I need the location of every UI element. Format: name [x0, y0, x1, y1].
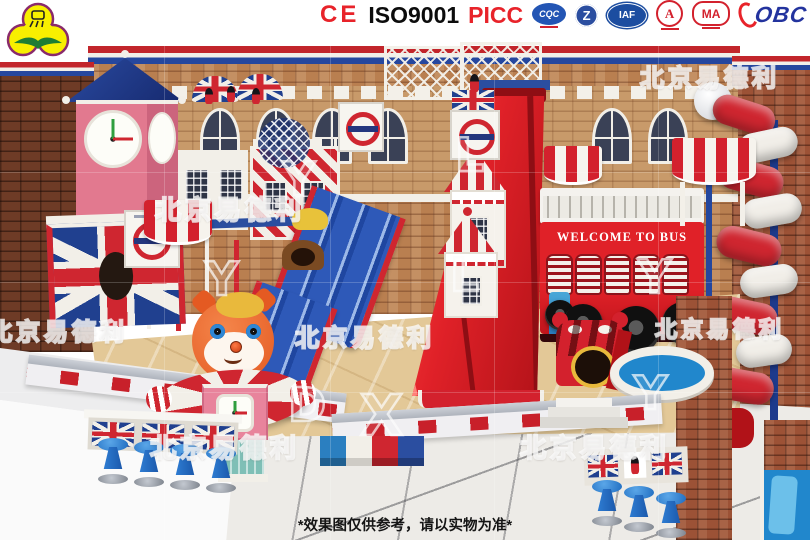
watermark-letter: Y	[282, 152, 315, 206]
grid-line	[0, 172, 810, 173]
barrel-arch	[282, 240, 324, 270]
cert-iso9001: ISO9001	[368, 2, 459, 29]
watermark-letter: X	[360, 384, 403, 449]
barrel-hole	[291, 248, 315, 266]
bus-shutter-window	[577, 256, 600, 293]
watermark-text: 北京易德利	[640, 58, 780, 93]
watermark-text: 北京易德利	[295, 318, 435, 353]
cert-badge-z: Z	[575, 4, 598, 27]
cert-badge-a: A	[656, 0, 683, 30]
cone-finial	[463, 207, 472, 216]
cert-badge-obc: OBC	[739, 2, 807, 28]
roof-corner-knob	[62, 96, 70, 104]
cert-badge-iaf: IAF	[607, 3, 647, 28]
pennant-trim	[452, 192, 504, 204]
guard-figure	[252, 88, 260, 104]
steps	[540, 398, 630, 430]
badge-subtext-line	[540, 26, 558, 28]
stool-stem	[102, 447, 124, 469]
watermark-text: 北京易德利	[150, 428, 300, 465]
grid-line	[494, 30, 495, 540]
guard-figure	[227, 86, 235, 102]
step	[556, 398, 612, 407]
step	[548, 407, 620, 417]
awning-post	[740, 182, 745, 226]
step	[540, 417, 628, 428]
striped-awning	[672, 138, 756, 185]
bar-stool	[98, 438, 128, 484]
badge-subtext-line	[702, 27, 720, 29]
brand-logo	[6, 2, 70, 64]
disclaimer-text: *效果图仅供参考，请以实物为准*	[0, 514, 810, 535]
striped-awning	[544, 146, 602, 185]
guard-figure	[470, 74, 479, 92]
watermark-letter: L	[455, 128, 484, 182]
watermark-letter: D	[288, 378, 326, 432]
grid-line	[0, 282, 810, 283]
left-wall-cornice	[0, 62, 94, 76]
watermark-letter: Y	[638, 250, 671, 304]
roof-corner-knob	[178, 96, 186, 104]
grid-line	[0, 392, 810, 393]
cubby	[320, 436, 346, 466]
stool-stem	[596, 489, 618, 511]
underground-roundel-sign	[346, 112, 380, 146]
roundel-bar	[348, 126, 379, 132]
clock-face-side	[148, 112, 176, 164]
cert-ce-mark: CE	[320, 1, 359, 29]
mascot-eye	[210, 324, 225, 339]
watermark-letter: Y	[205, 252, 238, 306]
cert-badge-ma: MA	[692, 1, 730, 29]
underground-sign-box	[338, 102, 384, 152]
watermark-letter: Y	[634, 366, 667, 420]
clock-face-front	[84, 110, 142, 168]
guard-figure	[205, 88, 213, 104]
bus-sign: WELCOME TO BUS	[540, 230, 704, 245]
watermark-text: 北京易德利	[655, 312, 785, 344]
slide-right-rail	[527, 96, 540, 396]
watermark-letter: L	[450, 248, 479, 302]
bus-shutter-window	[606, 256, 629, 293]
mascot-mouth	[224, 352, 242, 364]
roof-finial	[121, 50, 129, 58]
badge-subtext-line	[661, 28, 679, 30]
watermark-text: 北京易德利	[0, 312, 128, 347]
grid-line	[330, 30, 331, 540]
union-jack-banner	[452, 90, 494, 110]
playground-render: WELCOME TO BUS	[0, 0, 810, 540]
certification-row: CE ISO9001 PICC CQC Z IAF A MA OBC	[320, 0, 807, 30]
striped-ball	[146, 386, 172, 412]
watermark-text: 北京易德利	[520, 428, 670, 465]
awning-post	[680, 182, 685, 226]
cert-badge-cqc: CQC	[532, 3, 566, 28]
bus-shutter-window	[548, 256, 571, 293]
mascot-eye	[246, 324, 261, 339]
cert-picc: PICC	[468, 2, 523, 29]
